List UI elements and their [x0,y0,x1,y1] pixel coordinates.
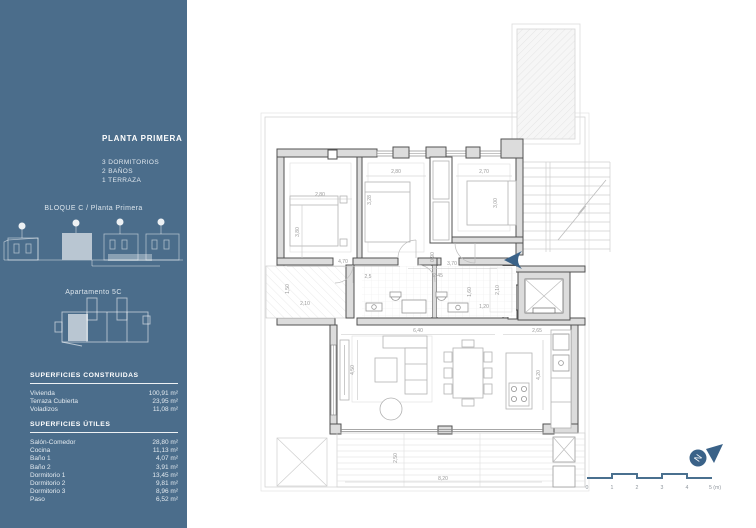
svg-text:8,20: 8,20 [438,476,448,482]
svg-text:2,65: 2,65 [532,328,542,334]
pouf-icon [380,398,402,420]
bathtub-icon [402,300,426,313]
program-item: 1 TERRAZA [102,176,159,185]
svg-text:2,50: 2,50 [393,453,399,463]
table-row: Dormitorio 1 13,45 m² [30,472,178,480]
living-room [340,336,492,420]
kitchen-counter-icon [551,330,571,428]
svg-text:4,70: 4,70 [338,259,348,265]
superficies-construidas-table: SUPERFICIES CONSTRUIDAS Vivienda 100,91 … [30,372,178,415]
table-row: Vivienda 100,91 m² [30,390,178,398]
svg-text:0,90: 0,90 [430,252,436,262]
table-row: Dormitorio 2 9,81 m² [30,480,178,488]
table-row: Paso 6,52 m² [30,496,178,504]
table-row: Dormitorio 3 8,96 m² [30,488,178,496]
table-row: Salón-Comedor 28,80 m² [30,439,178,447]
table-row: Terraza Cubierta 23,95 m² [30,398,178,406]
program-item: 2 BAÑOS [102,167,159,176]
page: 2,80 3,80 2,80 3,28 2,70 3,00 4,70 2,5 2… [0,0,756,528]
svg-text:3,28: 3,28 [367,195,373,205]
bedroom-2 [365,182,410,242]
svg-text:2,80: 2,80 [391,169,401,175]
svg-text:2,70: 2,70 [479,169,489,175]
svg-text:3,80: 3,80 [295,227,301,237]
svg-text:1,60: 1,60 [467,287,473,297]
apartment-diagram [0,296,187,350]
superficies-utiles-table: SUPERFICIES ÚTILES Salón-Comedor 28,80 m… [30,421,178,505]
highlighted-apartment [68,314,88,341]
sidebar: PLANTA PRIMERA 3 DORMITORIOS 2 BAÑOS 1 T… [0,0,187,528]
wardrobe [430,157,452,243]
svg-text:2,45: 2,45 [433,273,443,279]
svg-text:4,50: 4,50 [350,365,356,375]
svg-text:3,70: 3,70 [447,261,457,267]
plan-title: PLANTA PRIMERA [102,134,182,143]
svg-text:2,10: 2,10 [300,301,310,307]
apartment-label: Apartamento 5C [0,289,187,296]
table-heading: SUPERFICIES ÚTILES [30,421,178,433]
bedroom-3 [467,181,516,225]
svg-text:3: 3 [661,485,664,491]
svg-text:1: 1 [611,485,614,491]
bed-icon [290,196,338,246]
svg-text:4: 4 [686,485,689,491]
svg-text:1,20: 1,20 [479,304,489,310]
bed-icon [365,182,410,242]
coffee-table-icon [375,358,397,382]
dining-table-icon [444,340,492,406]
block-diagram [0,214,187,272]
svg-text:2,10: 2,10 [495,285,501,295]
svg-text:4,20: 4,20 [536,370,542,380]
kitchen-island-icon [506,353,532,409]
shaft-icon [553,437,575,487]
svg-text:3,00: 3,00 [493,198,499,208]
program-list: 3 DORMITORIOS 2 BAÑOS 1 TERRAZA [102,158,159,185]
balcony [266,265,354,318]
table-row: Voladizos 11,08 m² [30,406,178,414]
block-label: BLOQUE C / Planta Primera [0,205,187,212]
program-item: 3 DORMITORIOS [102,158,159,167]
scale-bar: 0 1 2 3 4 5 (m) [586,474,722,491]
svg-text:2,5: 2,5 [365,274,372,280]
staircase [523,162,610,252]
terrace [277,433,585,487]
table-heading: SUPERFICIES CONSTRUIDAS [30,372,178,384]
svg-text:6,40: 6,40 [413,328,423,334]
table-row: Cocina 11,13 m² [30,447,178,455]
highlighted-block [62,233,92,260]
table-row: Baño 2 3,91 m² [30,464,178,472]
bathroom-2 [436,266,516,317]
bed-icon [467,181,516,225]
table-row: Baño 1 4,07 m² [30,455,178,463]
bedroom-1 [290,196,347,246]
north-arrow-icon: N [690,444,724,467]
bathroom-1 [362,266,432,317]
upper-terrace-hatch [512,24,580,144]
svg-text:5 (m): 5 (m) [709,485,721,491]
svg-text:2: 2 [636,485,639,491]
svg-text:2,80: 2,80 [315,192,325,198]
skylight-icon [277,438,327,486]
svg-text:0: 0 [586,485,589,491]
svg-text:1,50: 1,50 [285,284,291,294]
